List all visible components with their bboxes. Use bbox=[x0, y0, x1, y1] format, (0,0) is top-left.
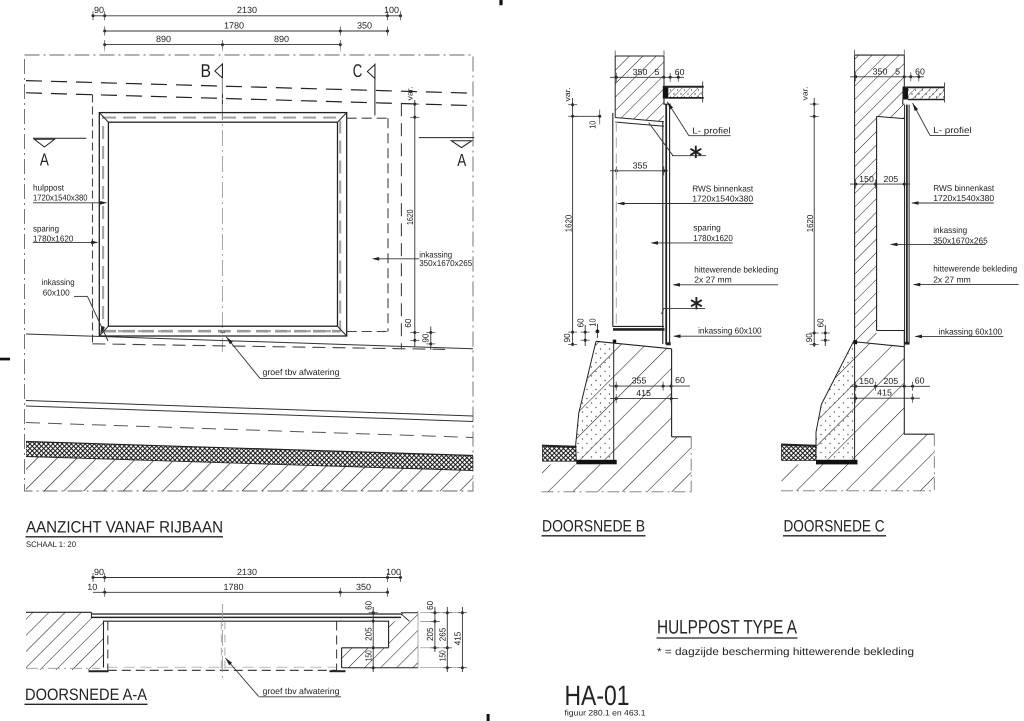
svg-text:10: 10 bbox=[87, 582, 97, 592]
svg-text:5: 5 bbox=[895, 66, 900, 76]
svg-text:L- profiel: L- profiel bbox=[933, 125, 972, 135]
svg-text:60: 60 bbox=[575, 318, 585, 327]
svg-text:150: 150 bbox=[859, 376, 874, 386]
svg-text:1780: 1780 bbox=[224, 21, 244, 31]
svg-text:90: 90 bbox=[562, 333, 572, 342]
svg-text:60: 60 bbox=[675, 67, 685, 77]
svg-text:inkassing: inkassing bbox=[42, 277, 75, 287]
svg-text:10: 10 bbox=[587, 121, 597, 129]
svg-text:hulppost: hulppost bbox=[33, 182, 65, 192]
svg-text:90: 90 bbox=[94, 567, 104, 577]
svg-text:HA-01: HA-01 bbox=[565, 680, 630, 711]
svg-text:350: 350 bbox=[633, 67, 648, 77]
svg-text:DOORSNEDE A-A: DOORSNEDE A-A bbox=[25, 686, 147, 704]
svg-text:1620: 1620 bbox=[805, 215, 815, 233]
svg-text:60: 60 bbox=[363, 601, 373, 610]
svg-text:C: C bbox=[353, 60, 363, 81]
svg-text:350: 350 bbox=[356, 582, 371, 592]
svg-text:890: 890 bbox=[156, 34, 171, 44]
svg-text:1720x1540x380: 1720x1540x380 bbox=[692, 194, 753, 204]
svg-text:350: 350 bbox=[873, 66, 888, 76]
svg-text:60: 60 bbox=[403, 319, 413, 328]
svg-text:350x1670x265: 350x1670x265 bbox=[933, 235, 988, 245]
svg-text:60: 60 bbox=[675, 375, 685, 385]
svg-text:inkassing: inkassing bbox=[933, 225, 967, 235]
svg-text:L- profiel: L- profiel bbox=[692, 125, 731, 135]
svg-text:100: 100 bbox=[386, 567, 401, 577]
svg-text:350: 350 bbox=[357, 21, 372, 31]
svg-text:sparing: sparing bbox=[693, 222, 721, 232]
svg-text:90: 90 bbox=[94, 5, 104, 15]
svg-text:265: 265 bbox=[438, 628, 448, 642]
svg-text:5: 5 bbox=[655, 67, 660, 77]
svg-text:415: 415 bbox=[453, 632, 463, 646]
svg-text:90: 90 bbox=[421, 334, 431, 343]
svg-text:1780x1620: 1780x1620 bbox=[693, 233, 733, 243]
svg-text:890: 890 bbox=[274, 34, 289, 44]
svg-text:HULPPOST TYPE A: HULPPOST TYPE A bbox=[657, 617, 797, 639]
svg-text:inkassing 60x100: inkassing 60x100 bbox=[939, 326, 1003, 336]
svg-text:60x100: 60x100 bbox=[43, 287, 70, 297]
svg-text:DOORSNEDE C: DOORSNEDE C bbox=[784, 518, 885, 536]
svg-text:sparing: sparing bbox=[33, 223, 59, 233]
svg-text:1780: 1780 bbox=[223, 582, 243, 592]
svg-text:1620: 1620 bbox=[405, 209, 415, 225]
svg-text:10: 10 bbox=[588, 318, 598, 326]
svg-text:2x 27 mm: 2x 27 mm bbox=[694, 275, 732, 285]
svg-text:RWS binnenkast: RWS binnenkast bbox=[692, 184, 754, 194]
svg-text:1720x1540x380: 1720x1540x380 bbox=[33, 192, 88, 202]
svg-text:355: 355 bbox=[632, 376, 647, 386]
svg-text:150: 150 bbox=[438, 650, 448, 661]
svg-text:AANZICHT VANAF RIJBAAN: AANZICHT VANAF RIJBAAN bbox=[26, 519, 223, 537]
svg-text:2130: 2130 bbox=[237, 5, 257, 15]
svg-text:var.: var. bbox=[563, 88, 572, 102]
svg-text:415: 415 bbox=[877, 388, 892, 398]
svg-text:205: 205 bbox=[425, 627, 435, 641]
svg-text:groef tbv afwatering: groef tbv afwatering bbox=[263, 686, 340, 696]
svg-text:1720x1540x380: 1720x1540x380 bbox=[933, 193, 994, 203]
svg-text:415: 415 bbox=[636, 388, 651, 398]
svg-text:205: 205 bbox=[883, 376, 898, 386]
svg-text:hittewerende bekleding: hittewerende bekleding bbox=[694, 264, 778, 274]
svg-text:150: 150 bbox=[363, 650, 373, 661]
svg-text:SCHAAL 1: 20: SCHAAL 1: 20 bbox=[26, 540, 77, 549]
svg-text:2x 27 mm: 2x 27 mm bbox=[933, 274, 971, 284]
svg-text:B: B bbox=[201, 60, 212, 81]
svg-text:100: 100 bbox=[384, 5, 399, 15]
svg-text:var.: var. bbox=[801, 87, 810, 101]
svg-text:RWS binnenkast: RWS binnenkast bbox=[933, 183, 995, 193]
svg-text:2130: 2130 bbox=[237, 567, 257, 577]
svg-text:DOORSNEDE B: DOORSNEDE B bbox=[542, 518, 645, 536]
svg-text:90: 90 bbox=[804, 333, 814, 342]
svg-text:var.: var. bbox=[405, 87, 414, 101]
svg-text:60: 60 bbox=[915, 66, 925, 76]
svg-text:1620: 1620 bbox=[563, 215, 573, 233]
svg-text:A: A bbox=[40, 150, 49, 170]
svg-text:A: A bbox=[457, 150, 466, 170]
svg-text:205: 205 bbox=[883, 174, 898, 184]
svg-text:60: 60 bbox=[425, 601, 435, 610]
svg-text:60: 60 bbox=[915, 375, 925, 385]
svg-text:hittewerende bekleding: hittewerende bekleding bbox=[933, 263, 1017, 273]
svg-text:205: 205 bbox=[363, 627, 373, 641]
svg-text:350x1670x265: 350x1670x265 bbox=[419, 258, 472, 268]
svg-text:groef tbv afwatering: groef tbv afwatering bbox=[263, 367, 340, 377]
svg-text:355: 355 bbox=[633, 160, 648, 170]
svg-text:60: 60 bbox=[816, 318, 826, 327]
svg-text:1780x1620: 1780x1620 bbox=[33, 233, 74, 243]
svg-text:figuur 280.1 en 463.1: figuur 280.1 en 463.1 bbox=[565, 709, 647, 718]
svg-text:inkassing 60x100: inkassing 60x100 bbox=[698, 326, 762, 336]
svg-text:150: 150 bbox=[859, 174, 874, 184]
svg-text:* = dagzijde bescherming hit: * = dagzijde bescherming hittewerende be… bbox=[657, 646, 914, 658]
